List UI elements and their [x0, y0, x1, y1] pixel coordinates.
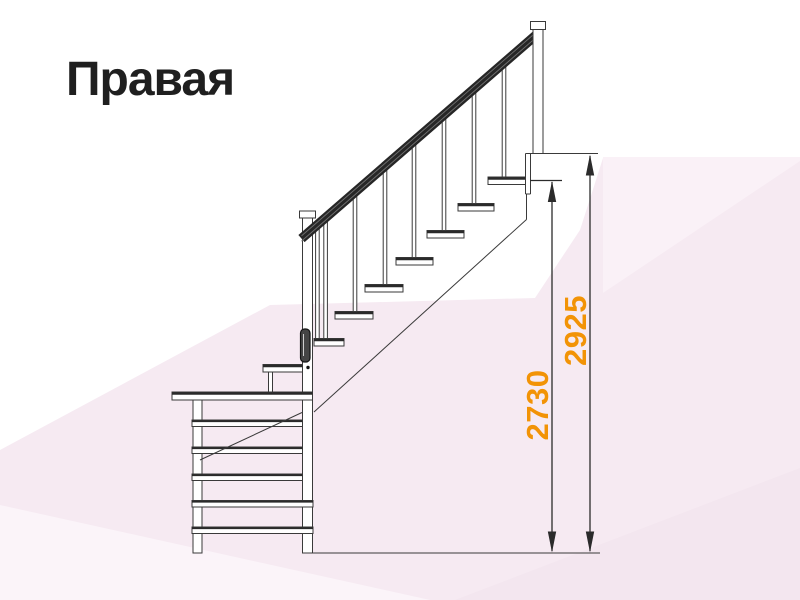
- arrow-up-icon: [586, 155, 594, 176]
- dimension-2925: 2925: [558, 155, 594, 553]
- dimension-value-2730: 2730: [520, 370, 555, 441]
- stack-bar: [192, 501, 313, 508]
- winder-tread: [263, 365, 303, 393]
- lower-flight-stack: [172, 211, 316, 553]
- stack-bar: [192, 420, 303, 427]
- winder-baluster: [269, 372, 273, 392]
- tread: [458, 204, 494, 212]
- tread: [365, 285, 403, 293]
- baluster: [324, 220, 328, 339]
- newel-fixing-dot: [306, 366, 309, 369]
- baluster: [442, 118, 446, 231]
- baluster: [316, 228, 320, 339]
- baluster: [502, 66, 506, 177]
- tread: [335, 312, 373, 320]
- arrow-down-icon: [548, 532, 556, 553]
- lower-landing-tread: [172, 392, 313, 400]
- diagram-canvas: Правая: [0, 0, 800, 600]
- handrail: [302, 32, 538, 242]
- tread: [488, 177, 526, 185]
- stack-bar: [192, 474, 303, 481]
- baluster: [383, 169, 387, 285]
- baluster: [412, 144, 416, 258]
- tread: [427, 231, 464, 239]
- stack-bar: [192, 447, 303, 454]
- newel-post-cap: [300, 211, 316, 218]
- staircase-diagram: 2730 2925: [0, 0, 800, 600]
- arrow-down-icon: [586, 532, 594, 553]
- stack-bar: [192, 527, 313, 534]
- lower-handrail-end-cap: [301, 329, 311, 362]
- top-post: [531, 22, 546, 154]
- dimension-2730: 2730: [520, 181, 562, 553]
- arrow-up-icon: [548, 181, 556, 202]
- upper-landing: [526, 154, 599, 220]
- baluster: [472, 92, 476, 204]
- top-post-cap: [531, 22, 546, 30]
- dimension-value-2925: 2925: [558, 295, 593, 366]
- tread: [314, 339, 344, 347]
- baluster: [353, 195, 357, 312]
- tread: [396, 258, 433, 266]
